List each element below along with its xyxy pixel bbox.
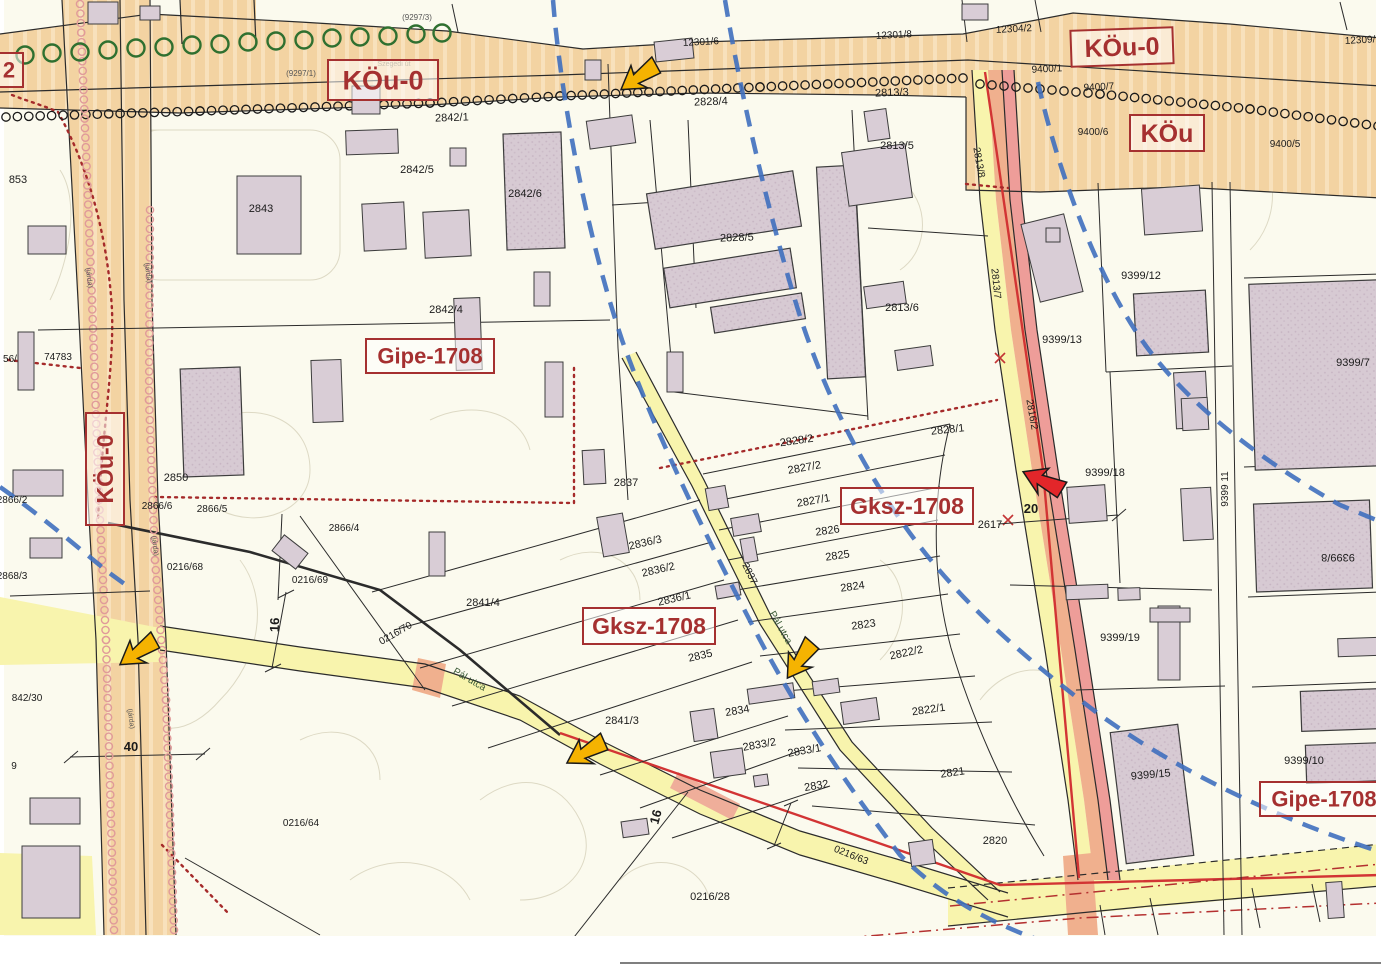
- parcel-label: 12301/8: [876, 29, 913, 42]
- building-footprint: [1150, 608, 1190, 622]
- building-footprint: [710, 748, 745, 778]
- zone-box-label: KÖu-0: [343, 65, 424, 95]
- parcel-label: 2841/4: [466, 597, 500, 609]
- parcel-label: 9399/13: [1042, 334, 1082, 346]
- parcel-label: 9399/7: [1336, 357, 1370, 369]
- building-footprint: [1181, 397, 1209, 430]
- building-footprint: [582, 449, 606, 484]
- building-footprint: [88, 2, 118, 24]
- parcel-label: 16: [267, 617, 282, 632]
- building-footprint: [1326, 881, 1344, 918]
- building-footprint: [1338, 637, 1381, 657]
- parcel-label: 9400/1: [1031, 63, 1063, 76]
- bottom-margin: [0, 936, 1381, 969]
- right-margin: [1376, 0, 1381, 969]
- parcel-label: 2813/3: [875, 86, 909, 99]
- parcel-label: 853: [9, 174, 27, 186]
- parcel-label: 9399/12: [1121, 270, 1161, 282]
- building-footprint: [311, 359, 343, 422]
- zone-label-box: Gksz-1708: [841, 488, 973, 524]
- parcel-label: 12301/6: [683, 36, 720, 49]
- building-footprint: [346, 129, 399, 155]
- building-footprint: [237, 176, 301, 254]
- zone-label-box: Gksz-1708: [583, 608, 715, 644]
- building-footprint: [1046, 228, 1060, 242]
- zone-box-label: Gipe-1708: [377, 344, 482, 369]
- building-footprint: [812, 678, 840, 695]
- zoning-map-page: 85356/7478328432842/12842/52842/62842/42…: [0, 0, 1381, 969]
- parcel-label: 2841/3: [605, 715, 639, 727]
- zone-label-box: KÖu-0: [1070, 27, 1173, 67]
- building-footprint: [585, 60, 601, 80]
- parcel-label: 2837: [614, 477, 638, 489]
- parcel-label: 2828/4: [694, 95, 728, 108]
- parcel-label: 9399 11: [1220, 471, 1231, 507]
- building-footprint: [30, 538, 62, 558]
- parcel-label: 9399/18: [1085, 467, 1125, 479]
- building-footprint: [667, 352, 683, 392]
- parcel-label: 0216/28: [690, 891, 730, 903]
- parcel-label: 2842/5: [400, 164, 434, 176]
- parcel-label: 2843: [249, 203, 273, 215]
- building-footprint: [1067, 485, 1107, 524]
- building-footprint: [362, 202, 406, 251]
- parcel-label: 12309/2: [1345, 34, 1381, 47]
- parcel-label: 2866/2: [0, 495, 28, 506]
- parcel-label: 56/: [3, 354, 17, 365]
- building-footprint: [705, 485, 729, 510]
- building-footprint: [140, 6, 160, 20]
- building-footprint: [962, 4, 988, 20]
- zone-box-label: KÖu-0: [1084, 31, 1160, 63]
- building-footprint: [1253, 500, 1372, 592]
- parcel-label: 2820: [983, 835, 1007, 847]
- zone-box-label: KÖu: [1141, 119, 1194, 148]
- building-footprint: [1249, 280, 1381, 470]
- building-footprint: [621, 818, 649, 837]
- parcel-label: 2842/4: [429, 304, 463, 316]
- building-footprint: [13, 470, 63, 496]
- building-footprint: [753, 774, 768, 787]
- parcel-label: 9: [11, 761, 17, 772]
- zone-label-box: KÖu: [1130, 115, 1204, 151]
- parcel-label: 9400/6: [1078, 127, 1109, 138]
- parcel-label: 9399/8: [1321, 551, 1355, 563]
- building-footprint: [1118, 588, 1140, 601]
- zone-label-box: 2: [0, 53, 23, 87]
- building-footprint: [18, 332, 34, 390]
- zone-label-box: Gipe-1708: [1260, 782, 1381, 816]
- parcel-label: 9399/19: [1100, 632, 1140, 644]
- parcel-label: 2866/6: [142, 501, 173, 512]
- zone-label-box: KÖu-0: [86, 413, 124, 525]
- zone-box-label: KÖu-0: [92, 435, 118, 504]
- building-footprint: [1066, 584, 1108, 599]
- building-footprint: [1300, 689, 1381, 732]
- building-footprint: [180, 367, 244, 477]
- zone-label-box: Gipe-1708: [366, 339, 494, 373]
- building-footprint: [450, 148, 466, 166]
- building-footprint: [1141, 185, 1202, 235]
- parcel-label: 2842/6: [508, 188, 542, 200]
- zone-box-label: Gksz-1708: [592, 613, 706, 639]
- parcel-label: (9297/3): [402, 13, 432, 22]
- zone-label-box: KÖu-0: [328, 60, 438, 100]
- parcel-label: 2868/3: [0, 571, 28, 582]
- parcel-label: 2866/5: [197, 504, 228, 515]
- building-footprint: [28, 226, 66, 254]
- building-footprint: [30, 798, 80, 824]
- zone-box-label: 2: [3, 58, 15, 83]
- building-footprint: [545, 362, 563, 417]
- building-footprint: [534, 272, 550, 306]
- parcel-label: (9297/1): [286, 69, 316, 78]
- parcel-label: 74783: [44, 352, 72, 363]
- parcel-label: 2842/1: [435, 111, 469, 124]
- building-footprint: [842, 144, 913, 206]
- parcel-label: 9400/5: [1270, 139, 1301, 150]
- parcel-label: 2828/5: [720, 231, 754, 244]
- parcel-label: 0216/69: [292, 575, 329, 586]
- parcel-label: 2866/4: [329, 523, 360, 534]
- building-footprint: [690, 708, 718, 741]
- parcel-label: 842/30: [12, 693, 43, 704]
- zone-box-label: Gksz-1708: [850, 493, 964, 519]
- parcel-label: 2813/5: [880, 140, 914, 152]
- building-footprint: [1181, 487, 1214, 540]
- zoning-map-canvas: 85356/7478328432842/12842/52842/62842/42…: [0, 0, 1381, 969]
- zone-box-label: Gipe-1708: [1271, 787, 1376, 812]
- parcel-label: 2850: [164, 472, 188, 484]
- parcel-label: 0216/64: [283, 818, 320, 829]
- parcel-label: 12304/2: [996, 23, 1033, 36]
- parcel-label: 9399/10: [1284, 755, 1324, 767]
- parcel-label: 40: [124, 739, 138, 754]
- building-footprint: [864, 109, 890, 142]
- building-footprint: [22, 846, 80, 918]
- parcel-label: 2813/6: [885, 302, 919, 314]
- building-footprint: [423, 210, 471, 258]
- building-footprint: [895, 346, 933, 371]
- parcel-label: 9400/7: [1083, 81, 1115, 94]
- parcel-label: 0216/68: [167, 562, 204, 573]
- building-footprint: [908, 839, 935, 866]
- parcel-label: 2617: [978, 519, 1002, 531]
- building-footprint: [586, 115, 635, 149]
- parcel-label: 20: [1024, 501, 1038, 516]
- building-footprint: [841, 698, 880, 725]
- building-footprint: [429, 532, 445, 576]
